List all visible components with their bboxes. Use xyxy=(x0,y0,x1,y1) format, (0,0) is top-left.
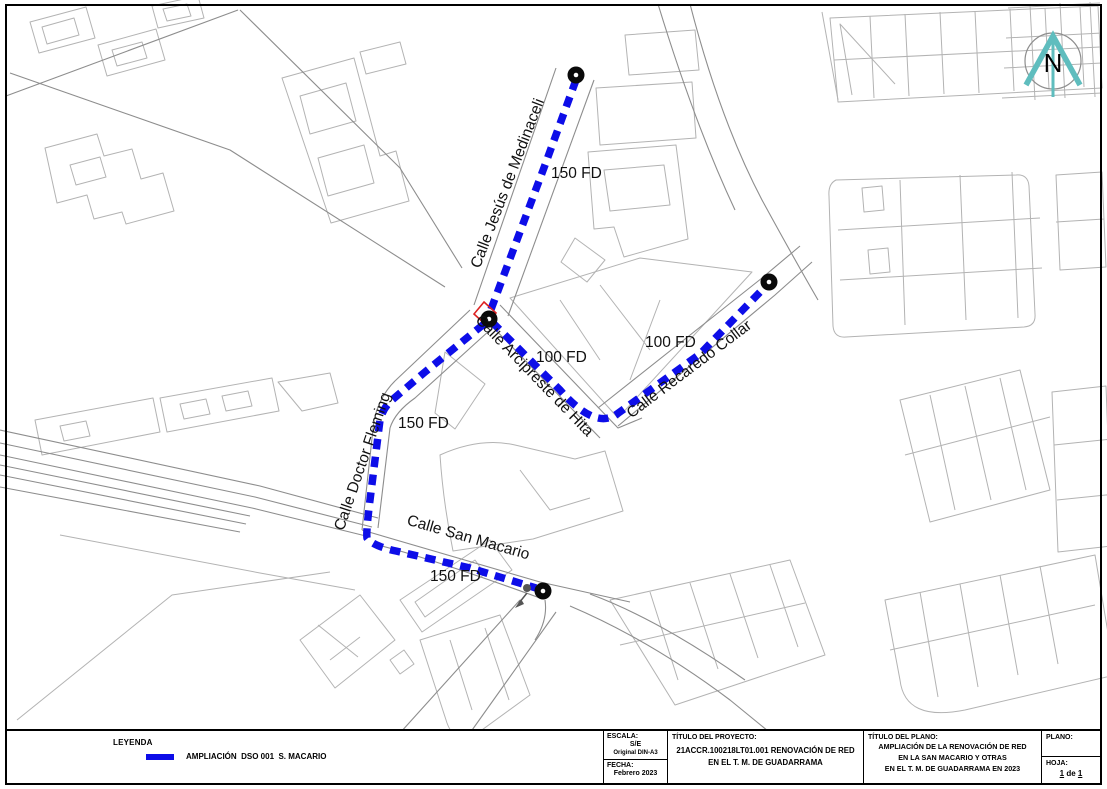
scale-value: S/E xyxy=(607,741,664,748)
date-section: FECHA: Febrero 2023 xyxy=(604,760,667,777)
legend-item-label: AMPLIACIÓN DSO 001 S. MACARIO xyxy=(186,752,326,761)
endpoint-marker xyxy=(515,584,531,608)
drawing-title-line3: EN EL T. M. DE GUADARRAMA EN 2023 xyxy=(864,764,1041,775)
sheet-section: HOJA: 1 de 1 xyxy=(1042,757,1100,782)
drawing-title-text: AMPLIACIÓN DE LA RENOVACIÓN DE RED EN LA… xyxy=(864,742,1041,774)
scale-date-cell: ESCALA: S/E Original DIN-A3 FECHA: Febre… xyxy=(603,731,667,783)
distance-label-arcipreste: 100 FD xyxy=(536,349,587,366)
sheet-label: HOJA: xyxy=(1046,760,1068,767)
project-title-text: 21ACCR.100218LT01.001 RENOVACIÓN DE RED … xyxy=(668,745,863,769)
scale-section: ESCALA: S/E Original DIN-A3 xyxy=(604,731,667,760)
drawing-title-line2: EN LA SAN MACARIO Y OTRAS xyxy=(864,753,1041,764)
plan-sheet: Calle Jesús de Medinaceli Calle Arcipres… xyxy=(0,0,1107,789)
title-block: LEYENDA AMPLIACIÓN DSO 001 S. MACARIO ES… xyxy=(7,729,1100,783)
plano-number-section: PLANO: xyxy=(1042,731,1100,757)
drawing-title-line1: AMPLIACIÓN DE LA RENOVACIÓN DE RED xyxy=(864,742,1041,753)
drawing-title-label: TÍTULO DEL PLANO: xyxy=(868,734,938,741)
street-label-fleming: Calle Doctor Fleming xyxy=(331,390,394,532)
plano-number-label: PLANO: xyxy=(1046,734,1073,741)
distance-label-recaredo: 100 FD xyxy=(645,334,696,351)
legend-row: AMPLIACIÓN DSO 001 S. MACARIO xyxy=(146,752,326,761)
project-title-label: TÍTULO DEL PROYECTO: xyxy=(672,734,757,741)
drawing-title-cell: TÍTULO DEL PLANO: AMPLIACIÓN DE LA RENOV… xyxy=(863,731,1041,783)
distance-label-medinaceli: 150 FD xyxy=(551,165,602,182)
cadastral-buildings xyxy=(17,0,1107,733)
scale-label: ESCALA: xyxy=(607,733,664,740)
distance-label-fleming: 150 FD xyxy=(398,415,449,432)
legend-title: LEYENDA xyxy=(113,738,153,747)
distance-label-sanmacario: 150 FD xyxy=(430,568,481,585)
legend-line-swatch xyxy=(146,754,174,760)
date-value: Febrero 2023 xyxy=(607,770,664,777)
legend-cell: LEYENDA AMPLIACIÓN DSO 001 S. MACARIO xyxy=(7,731,603,783)
street-label-sanmacario: Calle San Macario xyxy=(405,512,531,563)
sheet-separator: de xyxy=(1066,769,1075,778)
sheet-number-cell: PLANO: HOJA: 1 de 1 xyxy=(1041,731,1100,783)
project-title-line1: 21ACCR.100218LT01.001 RENOVACIÓN DE RED xyxy=(668,745,863,757)
sheet-value: 1 de 1 xyxy=(1042,769,1100,778)
sheet-total: 1 xyxy=(1078,769,1082,778)
street-label-arcipreste: Calle Arcipreste de Hita xyxy=(472,312,597,441)
sheet-page: 1 xyxy=(1060,769,1064,778)
original-format: Original DIN-A3 xyxy=(607,750,664,756)
project-title-line2: EN EL T. M. DE GUADARRAMA xyxy=(668,757,863,769)
date-label: FECHA: xyxy=(607,762,664,769)
renovation-route xyxy=(367,80,764,588)
north-label: N xyxy=(1044,48,1063,78)
map-canvas: Calle Jesús de Medinaceli Calle Arcipres… xyxy=(0,0,1107,733)
project-title-cell: TÍTULO DEL PROYECTO: 21ACCR.100218LT01.0… xyxy=(667,731,863,783)
street-label-recaredo: Calle Recaredo Collar xyxy=(624,317,755,422)
